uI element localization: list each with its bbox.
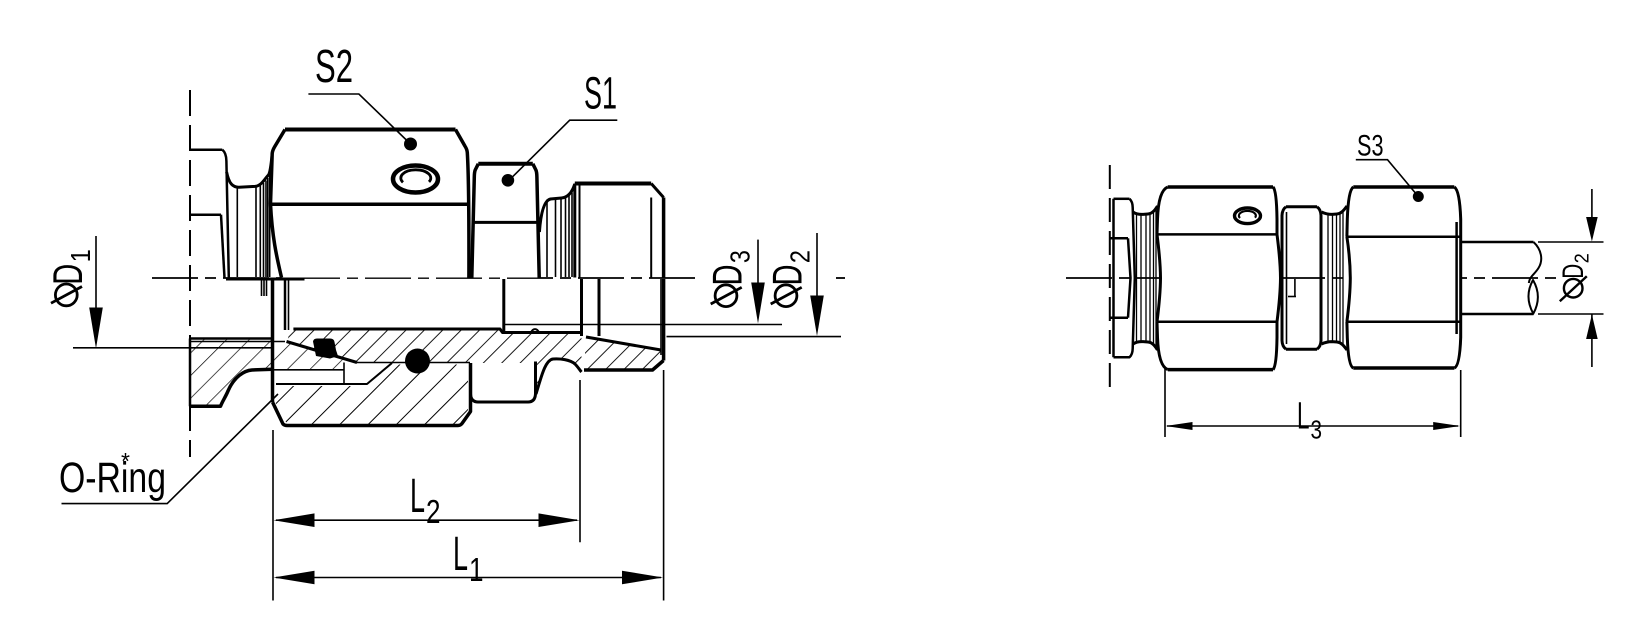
svg-text:D: D (44, 264, 91, 285)
svg-text:S3: S3 (1357, 130, 1384, 163)
svg-text:*: * (121, 448, 130, 474)
svg-text:O-Ring: O-Ring (59, 454, 166, 502)
svg-text:1: 1 (469, 551, 484, 588)
svg-text:D: D (1557, 264, 1590, 279)
svg-text:2: 2 (1571, 253, 1593, 263)
svg-text:2: 2 (426, 493, 441, 530)
svg-text:L: L (453, 528, 468, 581)
svg-text:1: 1 (65, 249, 96, 262)
svg-text:2: 2 (785, 250, 816, 263)
svg-text:D: D (704, 265, 751, 286)
svg-text:S2: S2 (315, 40, 353, 92)
svg-text:S1: S1 (584, 68, 617, 119)
svg-text:3: 3 (1311, 415, 1323, 445)
svg-text:D: D (764, 265, 811, 286)
svg-text:3: 3 (725, 250, 756, 263)
svg-text:L: L (1297, 396, 1310, 438)
svg-text:L: L (410, 470, 425, 523)
